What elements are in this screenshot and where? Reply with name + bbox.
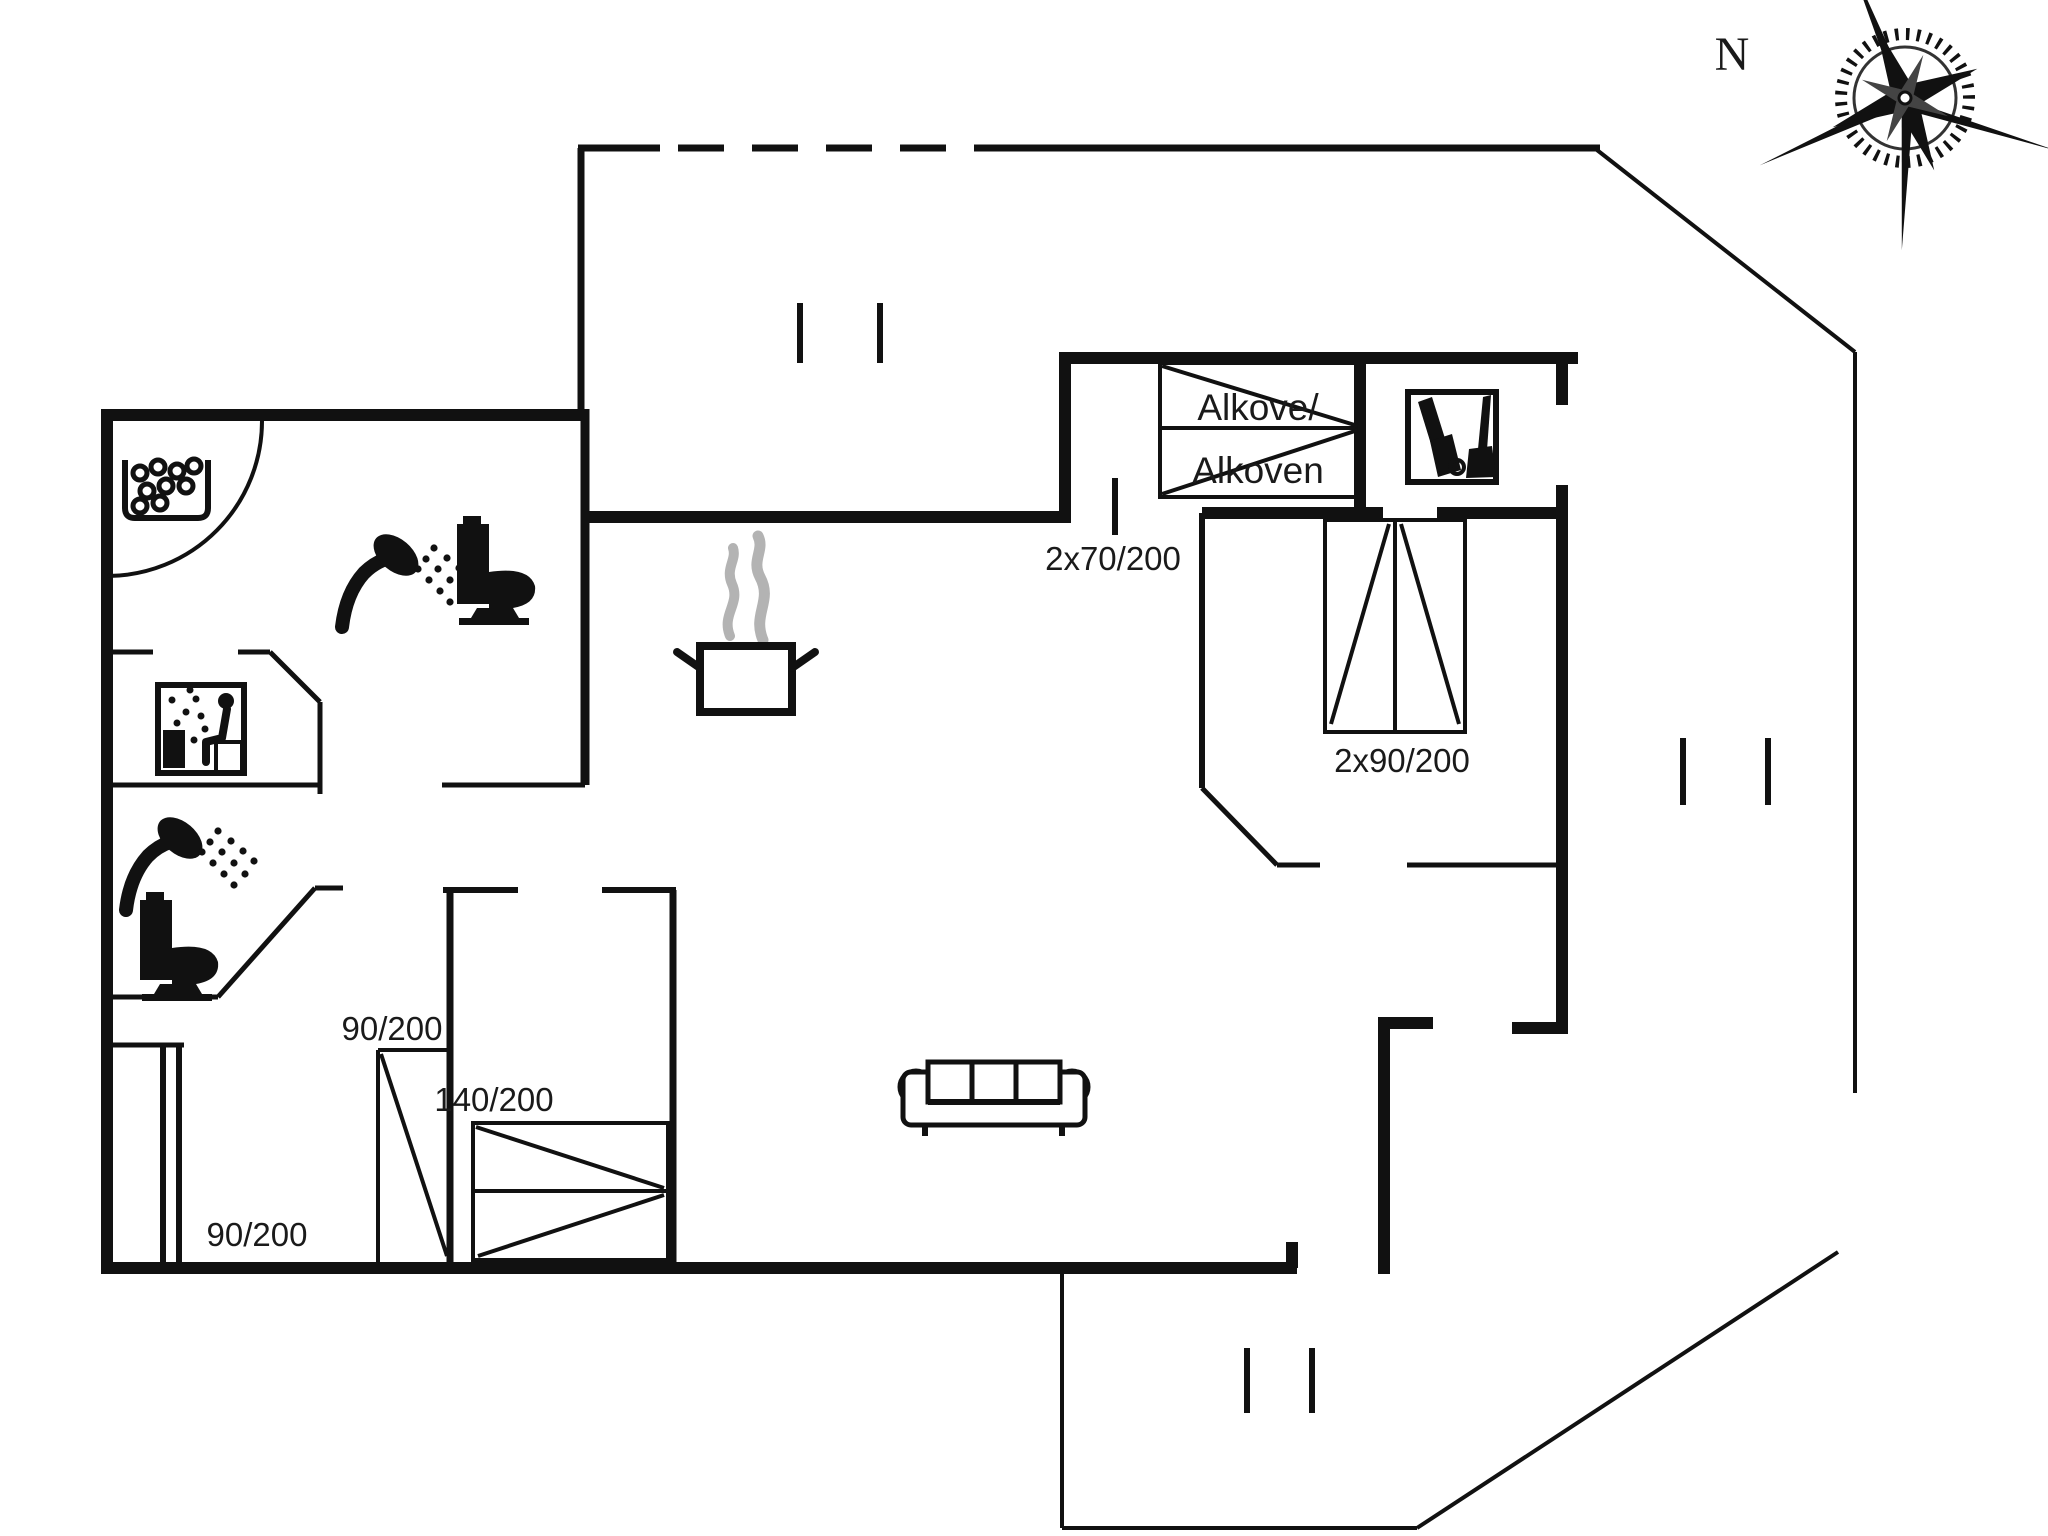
cooking-pot-icon <box>677 536 815 712</box>
terrace-edge-se-diagonal <box>1417 1252 1838 1528</box>
shower-icon-bathroom1 <box>342 526 474 627</box>
floor-plan-canvas: N Alkove/ Alkoven 2x70/200 2x90/200 90/2… <box>0 0 2048 1536</box>
wide-bed-fold-lower <box>478 1195 664 1256</box>
pot-body <box>700 646 792 712</box>
dim-double-bed: 2x90/200 <box>1334 742 1470 779</box>
terrace-edge-ne-diagonal <box>1597 150 1855 352</box>
whirlpool-icon <box>125 459 208 518</box>
sauna-person <box>206 693 242 772</box>
wide-bed-fold-upper <box>476 1127 664 1188</box>
sauna-stove <box>163 730 185 768</box>
sauna-icon <box>158 685 244 773</box>
exterior-walls <box>101 352 1578 1274</box>
compass-north-label: N <box>1715 28 1750 81</box>
vacuum-cleaner-icon <box>1408 392 1496 482</box>
steam-left <box>728 548 735 636</box>
toilet-icon-bathroom1 <box>457 516 535 625</box>
alcove-label-line2: Alkoven <box>1192 450 1324 491</box>
left-bed <box>103 1045 184 1263</box>
wide-bed <box>473 1123 668 1260</box>
shower-icon-bathroom2 <box>126 809 258 910</box>
steam-right <box>757 536 765 640</box>
mop-handle <box>1478 395 1491 450</box>
interior-walls <box>107 478 1566 1262</box>
alcove-label-line1: Alkove/ <box>1197 387 1319 428</box>
wall-ebedroom-chamfer <box>1202 788 1277 865</box>
north-room-walls <box>578 148 1600 418</box>
double-bed <box>1325 520 1465 732</box>
sofa-icon <box>900 1062 1088 1136</box>
double-bed-fold-left <box>1331 524 1389 724</box>
vacuum-body <box>1430 434 1461 477</box>
sofa-cushions <box>928 1062 1060 1102</box>
floor-plan-page: N Alkove/ Alkoven 2x70/200 2x90/200 90/2… <box>0 0 2048 1536</box>
compass-rose-icon: N <box>1700 0 2048 288</box>
door-swing-arc <box>108 421 262 576</box>
dim-single-bed-upper: 90/200 <box>342 1010 443 1047</box>
double-bed-fold-right <box>1401 524 1459 724</box>
wall-bathroom2-chamfer <box>218 888 315 997</box>
dim-alcove-beds: 2x70/200 <box>1045 540 1181 577</box>
mop-head <box>1466 446 1496 478</box>
dim-wide-bed: 140/200 <box>434 1081 553 1118</box>
wall-sauna-chamfer <box>270 652 320 702</box>
toilet-icon-bathroom2 <box>140 892 218 1001</box>
dim-single-bed-lower: 90/200 <box>207 1216 308 1253</box>
sauna-bench <box>216 742 242 772</box>
